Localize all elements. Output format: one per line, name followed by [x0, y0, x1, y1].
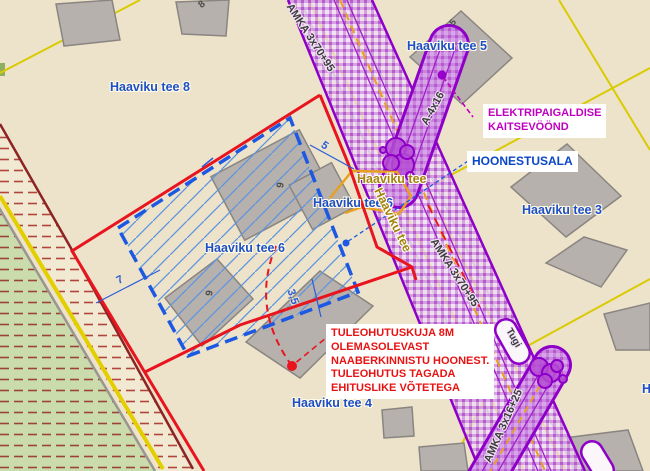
label-haaviku-tee-3: Haaviku tee 3	[522, 204, 602, 217]
label-street-haaviku-tee: Haaviku tee	[357, 173, 426, 186]
building-bottom-center	[419, 443, 468, 471]
label-haaviku-tee-4: Haaviku tee 4	[292, 397, 372, 410]
label-haaviku-tee-6: Haaviku tee 6	[205, 242, 285, 255]
building-number-6-main: 6	[273, 181, 284, 188]
building-small-sw	[382, 407, 414, 438]
annotation-fire-safety: TULEOHUTUSKUJA 8M OLEMASOLEVAST NAABERKI…	[326, 324, 494, 399]
green-patch-top-left	[0, 63, 5, 76]
annotation-elektripaigaldise: ELEKTRIPAIGALDISE KAITSEVÖÖND	[483, 104, 606, 138]
elektri-line-2: KAITSEVÖÖND	[488, 121, 601, 135]
support-pill-bottom	[592, 452, 603, 470]
label-haaviku-tee-5: Haaviku tee 5	[407, 40, 487, 53]
label-partial-right-edge: H	[642, 383, 650, 396]
building-number-6-small: 6	[202, 289, 213, 296]
label-haaviku-tee-8: Haaviku tee 8	[110, 81, 190, 94]
fire-line-5: EHITUSLIKE VÕTETEGA	[331, 382, 489, 396]
hoonestusala-text: HOONESTUSALA	[472, 154, 573, 169]
fire-line-2: OLEMASOLEVAST	[331, 341, 489, 355]
fire-line-1: TULEOHUTUSKUJA 8M	[331, 327, 489, 341]
fire-line-3: NAABERKINNISTU HOONEST.	[331, 355, 489, 369]
fire-leader-dot	[287, 361, 297, 371]
site-plan-map: Haaviku tee 8 Haaviku tee 5 Haaviku tee …	[0, 0, 650, 471]
annotation-hoonestusala: HOONESTUSALA	[467, 151, 578, 172]
fire-line-4: TULEOHUTUS TAGADA	[331, 368, 489, 382]
elektri-line-1: ELEKTRIPAIGALDISE	[488, 107, 601, 121]
elektri-leader-dot	[438, 71, 447, 80]
hoonestusala-leader-dot	[343, 240, 350, 247]
building-top-left	[56, 0, 120, 46]
